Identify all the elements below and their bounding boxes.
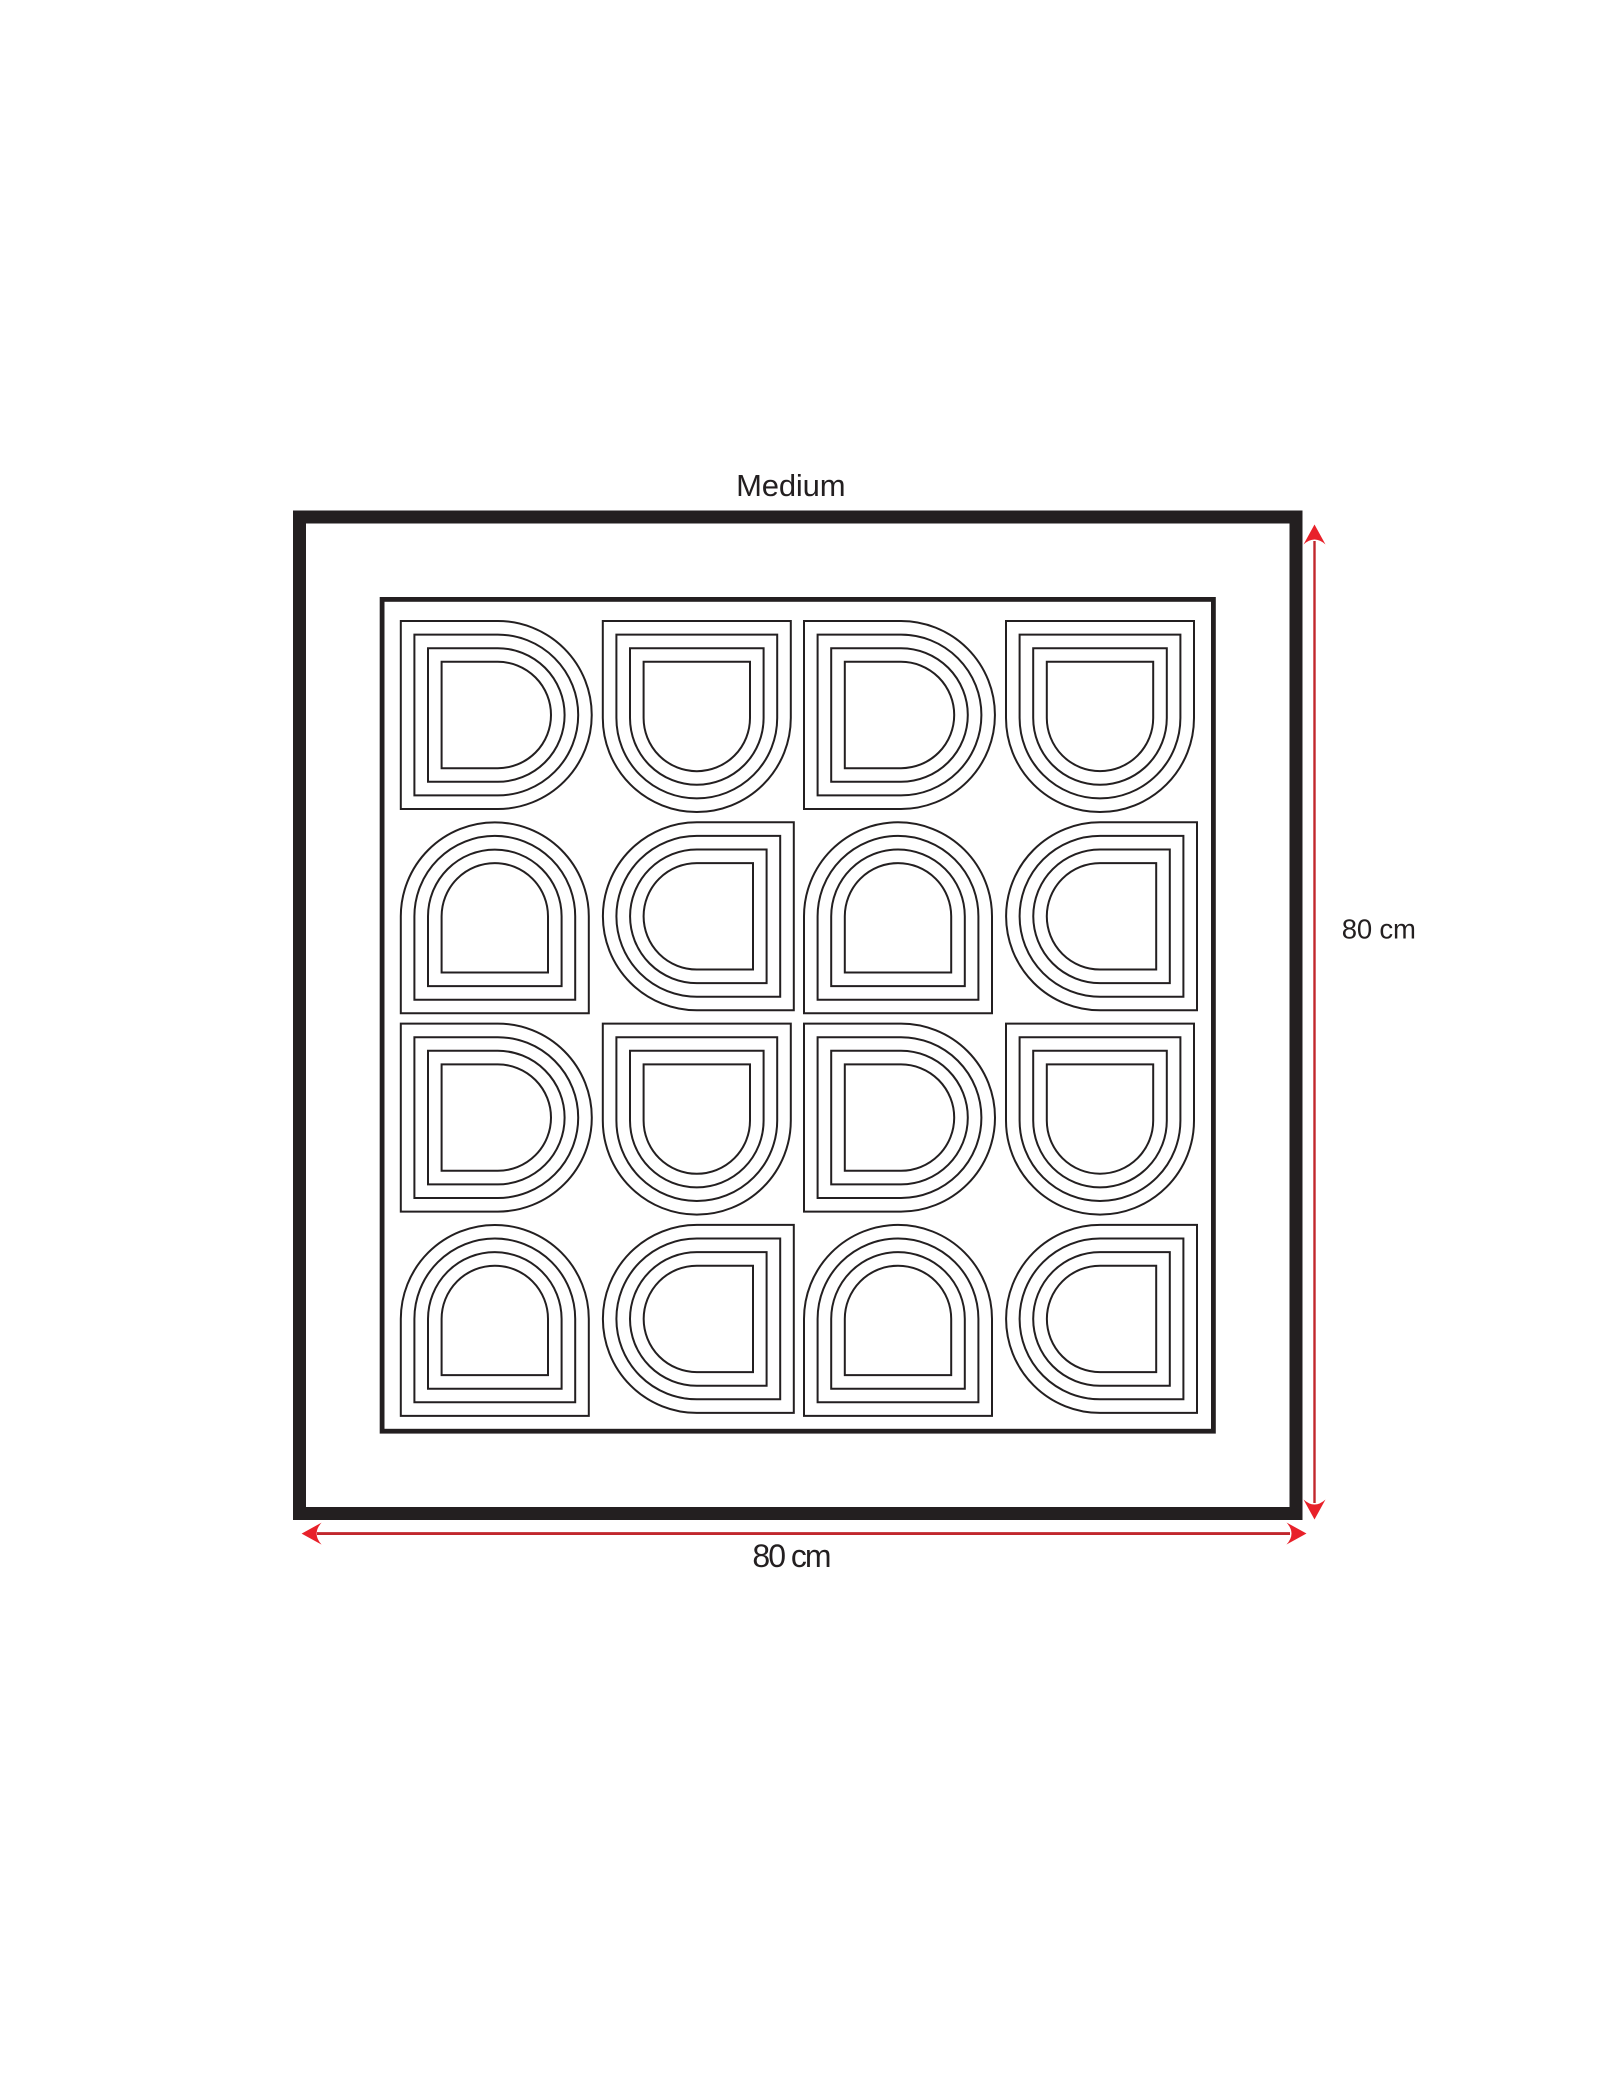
svg-text:Medium: Medium [736, 468, 845, 503]
svg-text:80 cm: 80 cm [1342, 913, 1416, 944]
svg-text:80 cm: 80 cm [752, 1538, 829, 1574]
